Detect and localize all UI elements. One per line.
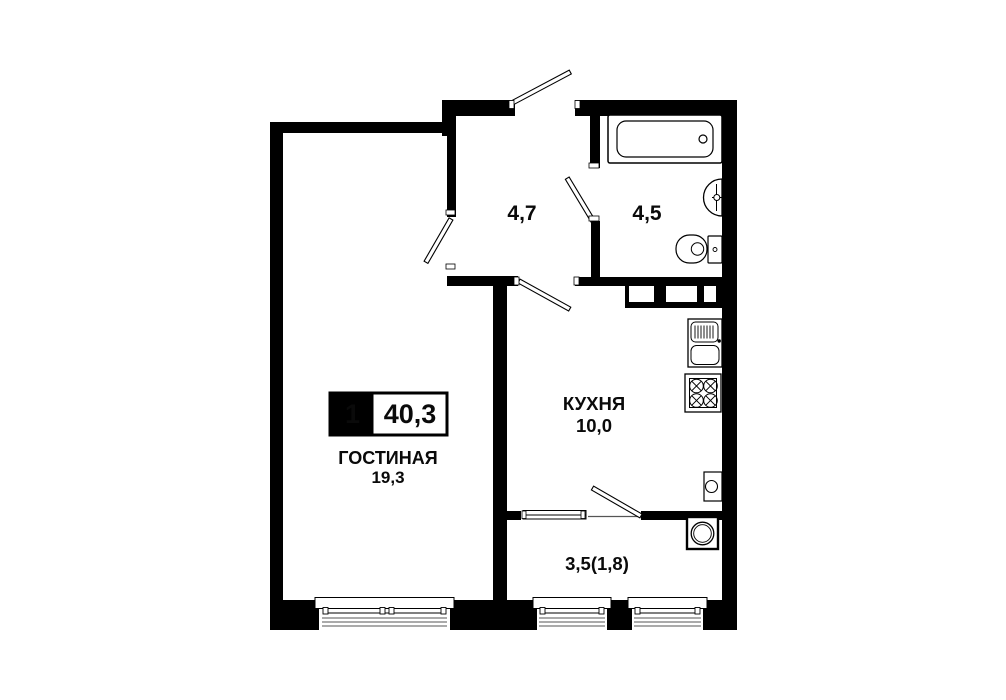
window-icon xyxy=(315,596,454,630)
balcony-window-icon xyxy=(521,509,641,521)
wall xyxy=(590,115,600,168)
balcony-door-icon xyxy=(591,486,642,518)
wall xyxy=(270,122,283,630)
window-icon xyxy=(628,596,707,630)
kitchen-area: 10,0 xyxy=(576,415,612,436)
entry-door-icon xyxy=(511,70,571,105)
walls xyxy=(270,100,737,630)
wall xyxy=(447,276,518,286)
wall xyxy=(575,100,736,116)
badge-total-area: 40,3 xyxy=(384,399,437,429)
wall xyxy=(591,221,600,277)
floor-plan-drawing: 1 40,3 ГОСТИНАЯ 19,3 4,7 4,5 КУХНЯ 10,0 … xyxy=(0,0,1006,700)
living-door-icon xyxy=(424,218,453,264)
bathroom-area: 4,5 xyxy=(632,202,662,225)
window-icon xyxy=(533,596,611,630)
living-room-label: ГОСТИНАЯ xyxy=(338,448,437,468)
bathtub-icon xyxy=(608,115,722,163)
floor-plan: 1 40,3 ГОСТИНАЯ 19,3 4,7 4,5 КУХНЯ 10,0 … xyxy=(0,0,1006,700)
living-room-area: 19,3 xyxy=(371,468,404,487)
wall xyxy=(447,114,456,217)
bathroom-door-icon xyxy=(565,177,595,222)
sink-icon xyxy=(704,179,723,216)
badge-rooms-count: 1 xyxy=(345,399,360,429)
toilet-icon xyxy=(676,235,722,263)
kitchen-label: КУХНЯ xyxy=(563,393,625,414)
kitchen-door-icon xyxy=(518,279,571,311)
ac-unit-icon xyxy=(687,517,718,549)
wall xyxy=(507,511,522,520)
hall-area: 4,7 xyxy=(507,202,536,225)
apartment-badge: 1 40,3 xyxy=(330,393,447,435)
balcony-area: 3,5(1,8) xyxy=(565,553,629,574)
stove-icon xyxy=(685,374,721,412)
wall xyxy=(722,100,737,630)
wall xyxy=(270,122,447,133)
water-heater-icon xyxy=(704,472,722,501)
kitchen-sink-icon xyxy=(688,319,722,367)
wall xyxy=(493,286,507,606)
vent-shaft-icon xyxy=(625,284,736,308)
